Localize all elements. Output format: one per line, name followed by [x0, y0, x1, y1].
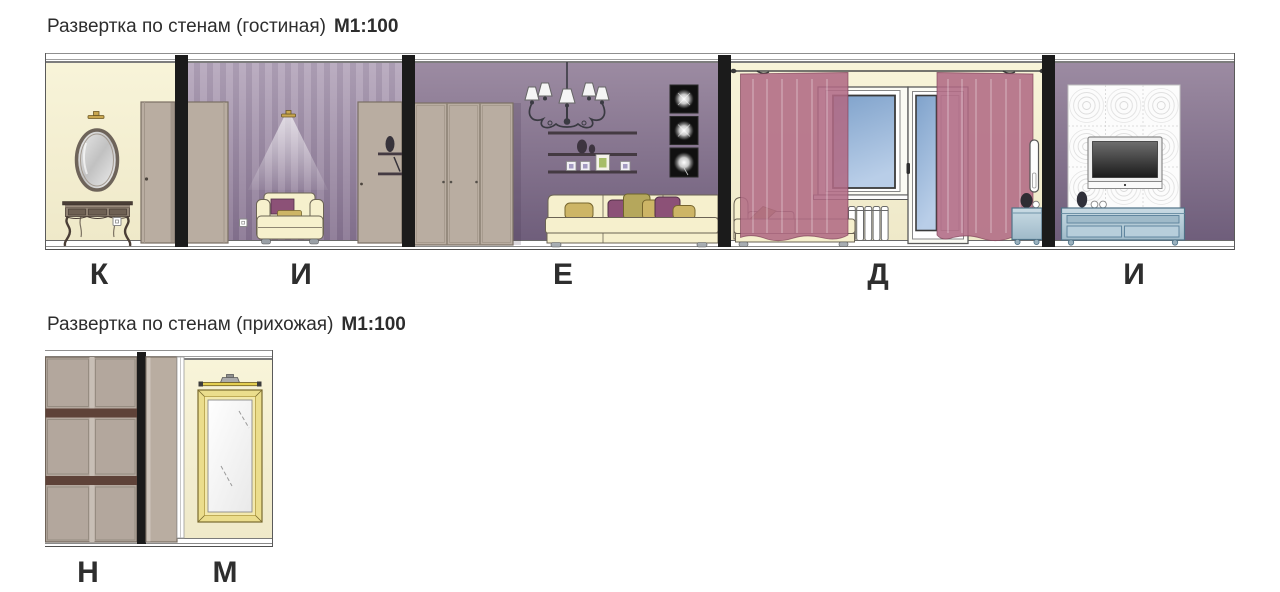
wall-sconce	[88, 112, 104, 119]
title-living-text: Развертка по стенам (гостиная)	[47, 16, 326, 37]
wall-corner-jamb	[177, 357, 184, 538]
black-vase	[1021, 193, 1033, 208]
chandelier	[525, 62, 609, 128]
title-hall-scale: М1:100	[341, 314, 405, 335]
hall-furniture-layer	[45, 350, 273, 546]
flat-tv	[1088, 137, 1162, 189]
title-hall: Развертка по стенам (прихожая)М1:100	[47, 314, 406, 336]
hall-mirror	[198, 390, 262, 522]
door-K	[141, 102, 175, 243]
wardrobe-panel-left	[187, 102, 228, 243]
hallway-elevation-strip	[45, 350, 273, 546]
wall-label-I2: И	[1123, 258, 1145, 292]
hall-wardrobe	[46, 357, 138, 542]
elevation-drawing-sheet: Развертка по стенам (гостиная)М1:100	[0, 0, 1280, 592]
socket-outlet	[113, 218, 121, 226]
title-hall-text: Развертка по стенам (прихожая)	[47, 314, 333, 335]
console-table	[63, 202, 133, 247]
socket-outlet-I	[240, 219, 248, 227]
oval-mirror	[77, 130, 118, 190]
title-living: Развертка по стенам (гостиная)М1:100	[47, 16, 398, 38]
wardrobe-three-door	[414, 103, 521, 245]
living-room-elevation-strip	[45, 53, 1235, 250]
curtain-rod	[731, 69, 1046, 73]
vertical-accent-lamp	[1030, 140, 1039, 192]
sconce-light-cone	[248, 117, 328, 190]
wall-label-M: М	[213, 556, 238, 590]
armchair	[257, 193, 324, 244]
sofa-main	[546, 194, 719, 247]
wall-label-N: Н	[77, 556, 99, 590]
title-living-scale: М1:100	[334, 16, 398, 37]
wall-shelves-decor	[548, 132, 637, 174]
wall-label-K: К	[90, 258, 108, 292]
mirror-picture-light	[199, 375, 262, 387]
hall-side-panel	[146, 357, 177, 542]
wall-section-divider-2	[137, 352, 146, 544]
white-ball	[1033, 201, 1040, 208]
wall-label-I1: И	[290, 258, 312, 292]
living-furniture-layer	[45, 53, 1235, 250]
dandelion-pictures	[670, 85, 698, 177]
wall-sconce-I	[282, 111, 296, 118]
curtain-left	[741, 73, 849, 241]
wall-label-D: Д	[867, 258, 888, 292]
wall-label-E: Е	[553, 258, 573, 292]
black-vase-2	[1077, 192, 1087, 208]
